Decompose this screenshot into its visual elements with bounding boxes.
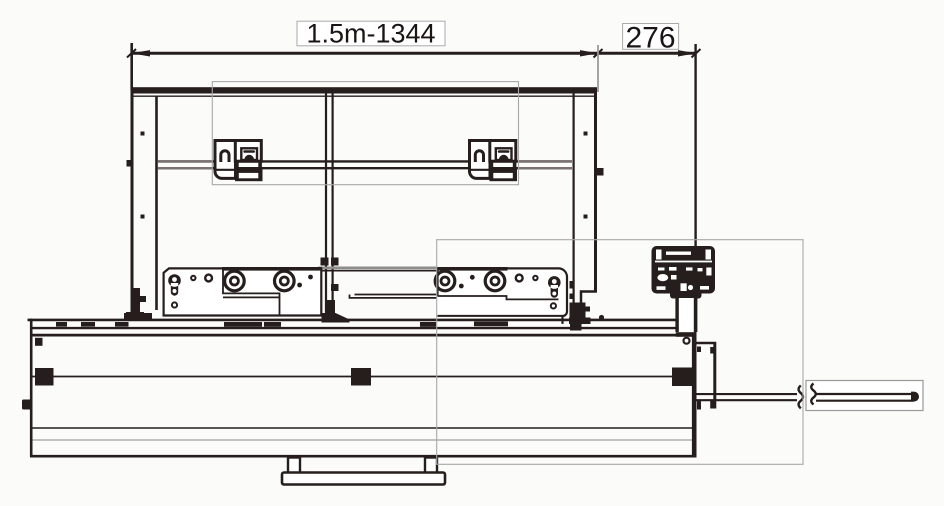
svg-text:1.5m-1344: 1.5m-1344: [306, 18, 435, 48]
svg-text:276: 276: [625, 21, 675, 54]
